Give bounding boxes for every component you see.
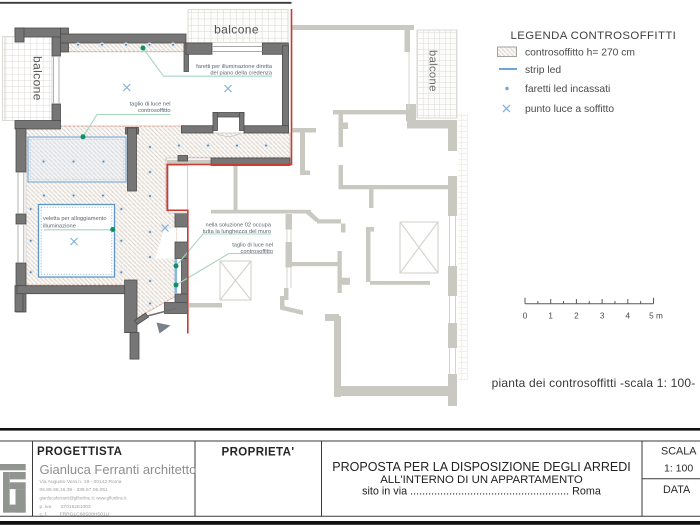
svg-text:illuminazione: illuminazione bbox=[43, 224, 76, 230]
svg-text:Gianluca Ferranti architetto: Gianluca Ferranti architetto bbox=[40, 462, 197, 477]
svg-text:4: 4 bbox=[626, 312, 631, 321]
svg-text:controsoffitto h= 270 cm: controsoffitto h= 270 cm bbox=[525, 48, 635, 59]
svg-text:2: 2 bbox=[574, 312, 579, 321]
svg-text:faretti led incassati: faretti led incassati bbox=[525, 84, 610, 95]
svg-text:c. f. FRRGLC68S08H501U: c. f. FRRGLC68S08H501U bbox=[40, 512, 110, 518]
svg-text:faretti per illuminazione dire: faretti per illuminazione diretta bbox=[196, 64, 273, 70]
svg-text:p. iva 07016281003: p. iva 07016281003 bbox=[40, 504, 91, 510]
svg-text:controsoffitto: controsoffitto bbox=[241, 249, 273, 255]
svg-text:del piano della credenza: del piano della credenza bbox=[210, 71, 272, 77]
svg-text:5 m: 5 m bbox=[649, 312, 663, 321]
svg-text:DATA: DATA bbox=[663, 484, 691, 496]
svg-text:nella soluzione 02 occupa: nella soluzione 02 occupa bbox=[206, 223, 272, 229]
svg-text:PROPRIETA': PROPRIETA' bbox=[222, 447, 295, 459]
svg-text:LEGENDA CONTROSOFFITTI: LEGENDA CONTROSOFFITTI bbox=[511, 30, 677, 42]
svg-text:tutta la lunghezza del muro: tutta la lunghezza del muro bbox=[203, 229, 271, 235]
svg-text:balcone: balcone bbox=[427, 50, 439, 92]
svg-text:taglio di luce nel: taglio di luce nel bbox=[130, 102, 171, 108]
svg-text:strip led: strip led bbox=[525, 65, 561, 76]
svg-text:taglio di luce nel: taglio di luce nel bbox=[232, 243, 273, 249]
svg-text:sito in via ..................: sito in via ............................… bbox=[362, 486, 601, 498]
svg-text:1: 1 bbox=[548, 312, 553, 321]
svg-text:controsoffitto: controsoffitto bbox=[138, 108, 170, 114]
svg-text:SCALA: SCALA bbox=[661, 446, 697, 458]
svg-text:pianta dei controsoffitti -sca: pianta dei controsoffitti -scala 1: 100- bbox=[492, 376, 696, 390]
svg-text:gianlucaferranti@glfonline.it;: gianlucaferranti@glfonline.it; www.glfon… bbox=[40, 496, 128, 501]
svg-text:PROPOSTA PER LA DISPOSIZIONE D: PROPOSTA PER LA DISPOSIZIONE DEGLI ARRED… bbox=[332, 460, 630, 474]
svg-text:Via Augusto Vera n. 19 - 00142: Via Augusto Vera n. 19 - 00142 Roma bbox=[40, 479, 122, 485]
svg-text:veletta per alloggiamento: veletta per alloggiamento bbox=[43, 216, 107, 222]
svg-text:ALL'INTERNO DI UN APPARTAMENTO: ALL'INTERNO DI UN APPARTAMENTO bbox=[380, 474, 583, 486]
svg-text:0: 0 bbox=[523, 312, 528, 321]
svg-text:3: 3 bbox=[600, 312, 605, 321]
svg-text:balcone: balcone bbox=[214, 23, 259, 37]
svg-text:punto luce a soffitto: punto luce a soffitto bbox=[525, 104, 614, 115]
svg-text:PROGETTISTA: PROGETTISTA bbox=[37, 446, 122, 458]
svg-text:balcone: balcone bbox=[31, 56, 45, 101]
svg-text:1: 100: 1: 100 bbox=[664, 463, 693, 475]
svg-text:06.86.98.16.39 - 339.57.06.051: 06.86.98.16.39 - 339.57.06.051 bbox=[40, 487, 109, 493]
